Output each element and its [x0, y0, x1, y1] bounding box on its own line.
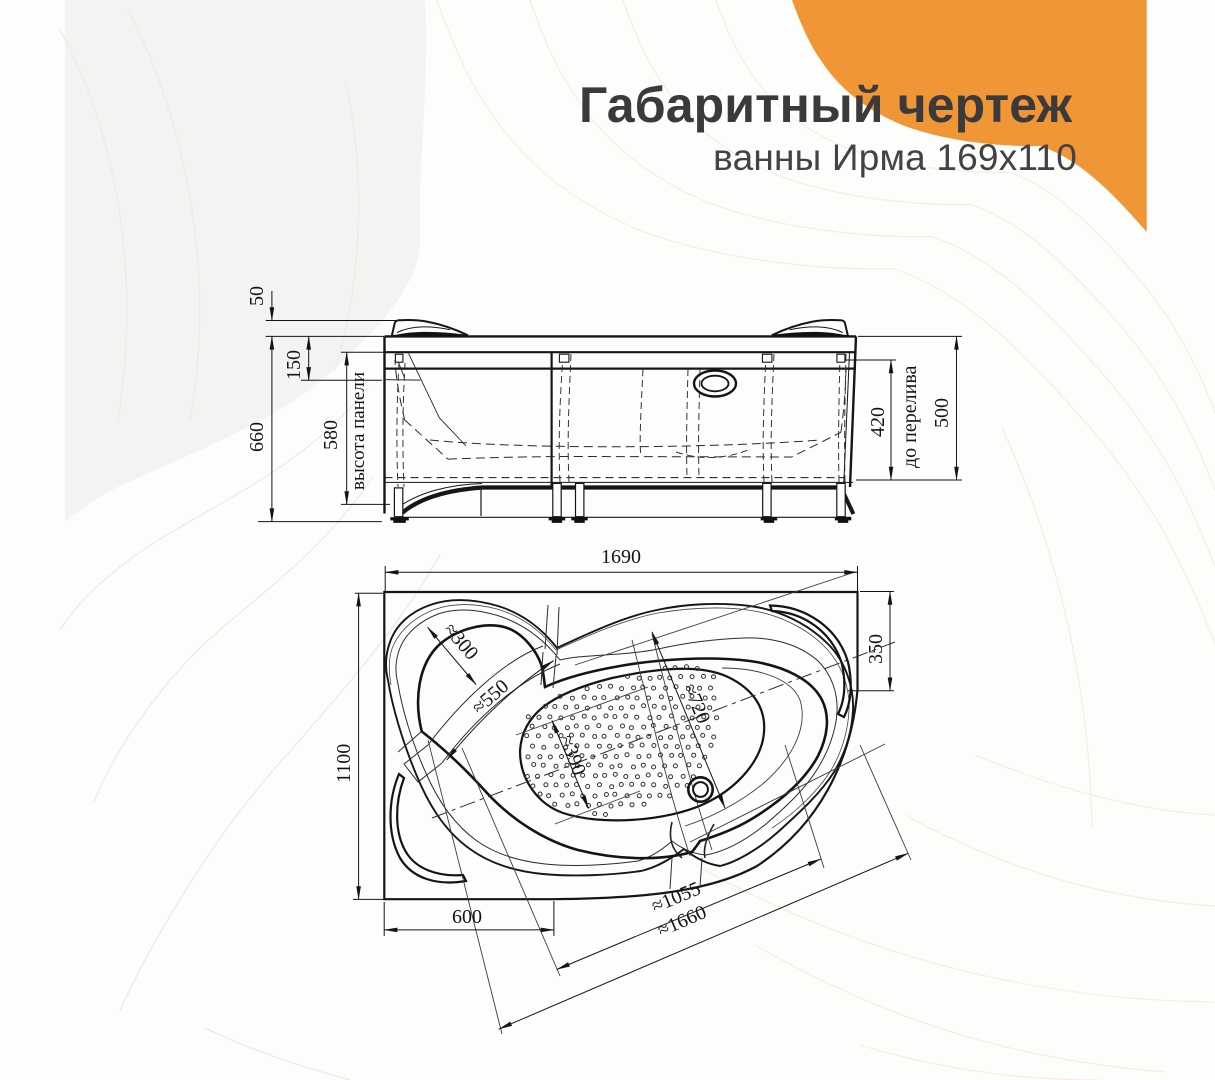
svg-text:Габаритный чертеж: Габаритный чертеж [579, 77, 1072, 133]
svg-text:высота панели: высота панели [348, 372, 369, 490]
svg-text:660: 660 [246, 422, 268, 452]
svg-text:1690: 1690 [601, 546, 641, 568]
svg-text:до перелива: до перелива [899, 366, 921, 468]
svg-text:420: 420 [867, 407, 889, 437]
svg-text:ванны Ирма 169x110: ванны Ирма 169x110 [713, 137, 1077, 178]
svg-text:600: 600 [452, 906, 482, 928]
svg-text:500: 500 [931, 398, 953, 428]
svg-text:580: 580 [320, 420, 342, 450]
svg-text:350: 350 [865, 634, 887, 664]
svg-text:150: 150 [283, 350, 305, 380]
svg-text:1100: 1100 [333, 744, 355, 783]
svg-text:50: 50 [246, 286, 268, 306]
